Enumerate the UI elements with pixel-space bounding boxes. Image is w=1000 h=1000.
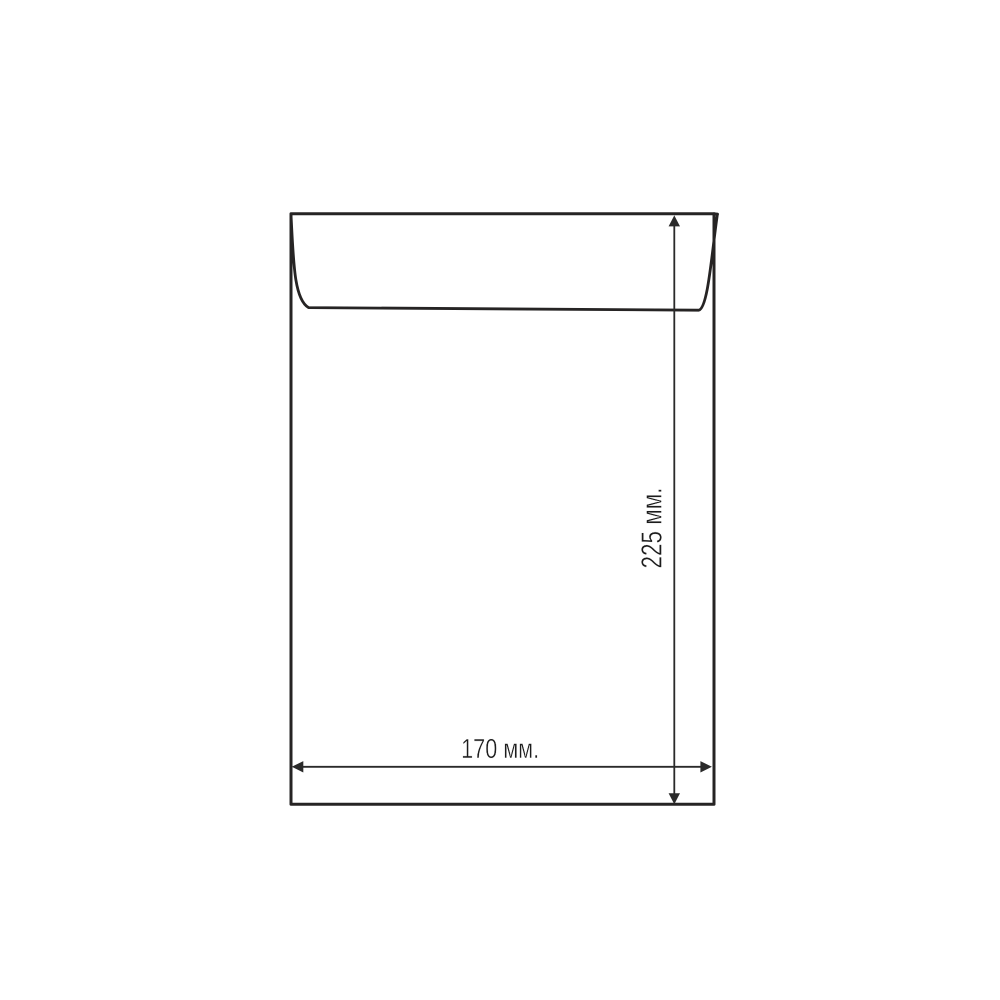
svg-text:225 мм.: 225 мм.	[637, 488, 669, 569]
svg-text:170 мм.: 170 мм.	[461, 733, 539, 764]
